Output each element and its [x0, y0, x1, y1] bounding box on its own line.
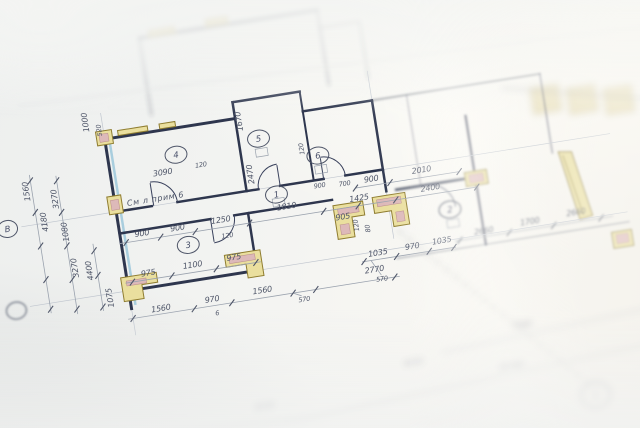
- room-number: 4: [173, 150, 180, 161]
- dimension-label: 3270: [69, 257, 81, 278]
- dimension-label: 570: [298, 295, 311, 305]
- plan-rotor: 756025760643060301: [0, 0, 640, 428]
- dimension-label: 3270: [49, 189, 61, 210]
- dimension-label: 2770: [364, 264, 385, 276]
- dimension-label: 3090: [152, 167, 173, 179]
- dimension-label: 6430: [403, 357, 424, 369]
- dimension-label: 700: [338, 179, 351, 189]
- dimension-label: 2470: [245, 164, 257, 185]
- dimension-label: 570: [376, 274, 389, 284]
- dimension-label: 900: [134, 228, 150, 239]
- dimension-label: 1035: [431, 235, 452, 247]
- dimension-label: 120: [221, 231, 234, 241]
- dimension-label: 7560: [512, 319, 533, 331]
- dimension-label: 1000: [79, 112, 91, 133]
- dimension-label: 1035: [367, 247, 388, 259]
- dimension-label: 80: [363, 224, 372, 233]
- dimension-label: 900: [313, 181, 326, 191]
- dimension-label: 1100: [182, 259, 203, 271]
- grid-axis-bubble: [5, 301, 27, 321]
- dimension-label: 2400: [420, 182, 441, 194]
- dimension-label: 4400: [84, 260, 96, 281]
- dimension-label: 1080: [59, 222, 71, 243]
- dimension-label: 900: [363, 173, 379, 184]
- dimension-label: 970: [404, 241, 420, 252]
- dimension-label: 1425: [349, 192, 370, 204]
- room-number: 3: [185, 241, 192, 252]
- dimension-label: 4180: [38, 212, 50, 233]
- dimension-label: 900: [170, 222, 186, 233]
- dimension-label: 6: [215, 309, 220, 318]
- sharp-plan-layer: 10005203090120См л прим 6167024701209009…: [0, 31, 635, 354]
- dimension-label: 2010: [411, 164, 432, 176]
- room-number: 6: [315, 151, 322, 162]
- dimension-label: 970: [204, 294, 220, 305]
- blueprint-photo: 756025760643060301: [0, 0, 640, 428]
- room-number: 5: [255, 134, 262, 145]
- dimension-label: 25760: [498, 360, 524, 373]
- dimension-label: 1670: [233, 111, 245, 132]
- room-number: 1: [273, 190, 280, 201]
- soft-blurred-layer: [10, 0, 640, 135]
- dimension-label: 120: [351, 219, 361, 232]
- dimension-label: 1075: [104, 287, 116, 308]
- room-number: 2: [447, 205, 454, 216]
- dimension-label: 1560: [252, 284, 273, 296]
- far-labels: 756025760643060301: [248, 309, 613, 428]
- dimension-label: 6030: [254, 400, 275, 412]
- grid-axis-label: 1: [592, 391, 599, 402]
- dimension-label: 120: [194, 160, 207, 170]
- grid-axis-label: В: [4, 225, 11, 236]
- dimension-label: 1250: [210, 214, 231, 226]
- floor-plan-drawing: 756025760643060301: [0, 0, 640, 428]
- dimension-label: 120: [297, 142, 307, 155]
